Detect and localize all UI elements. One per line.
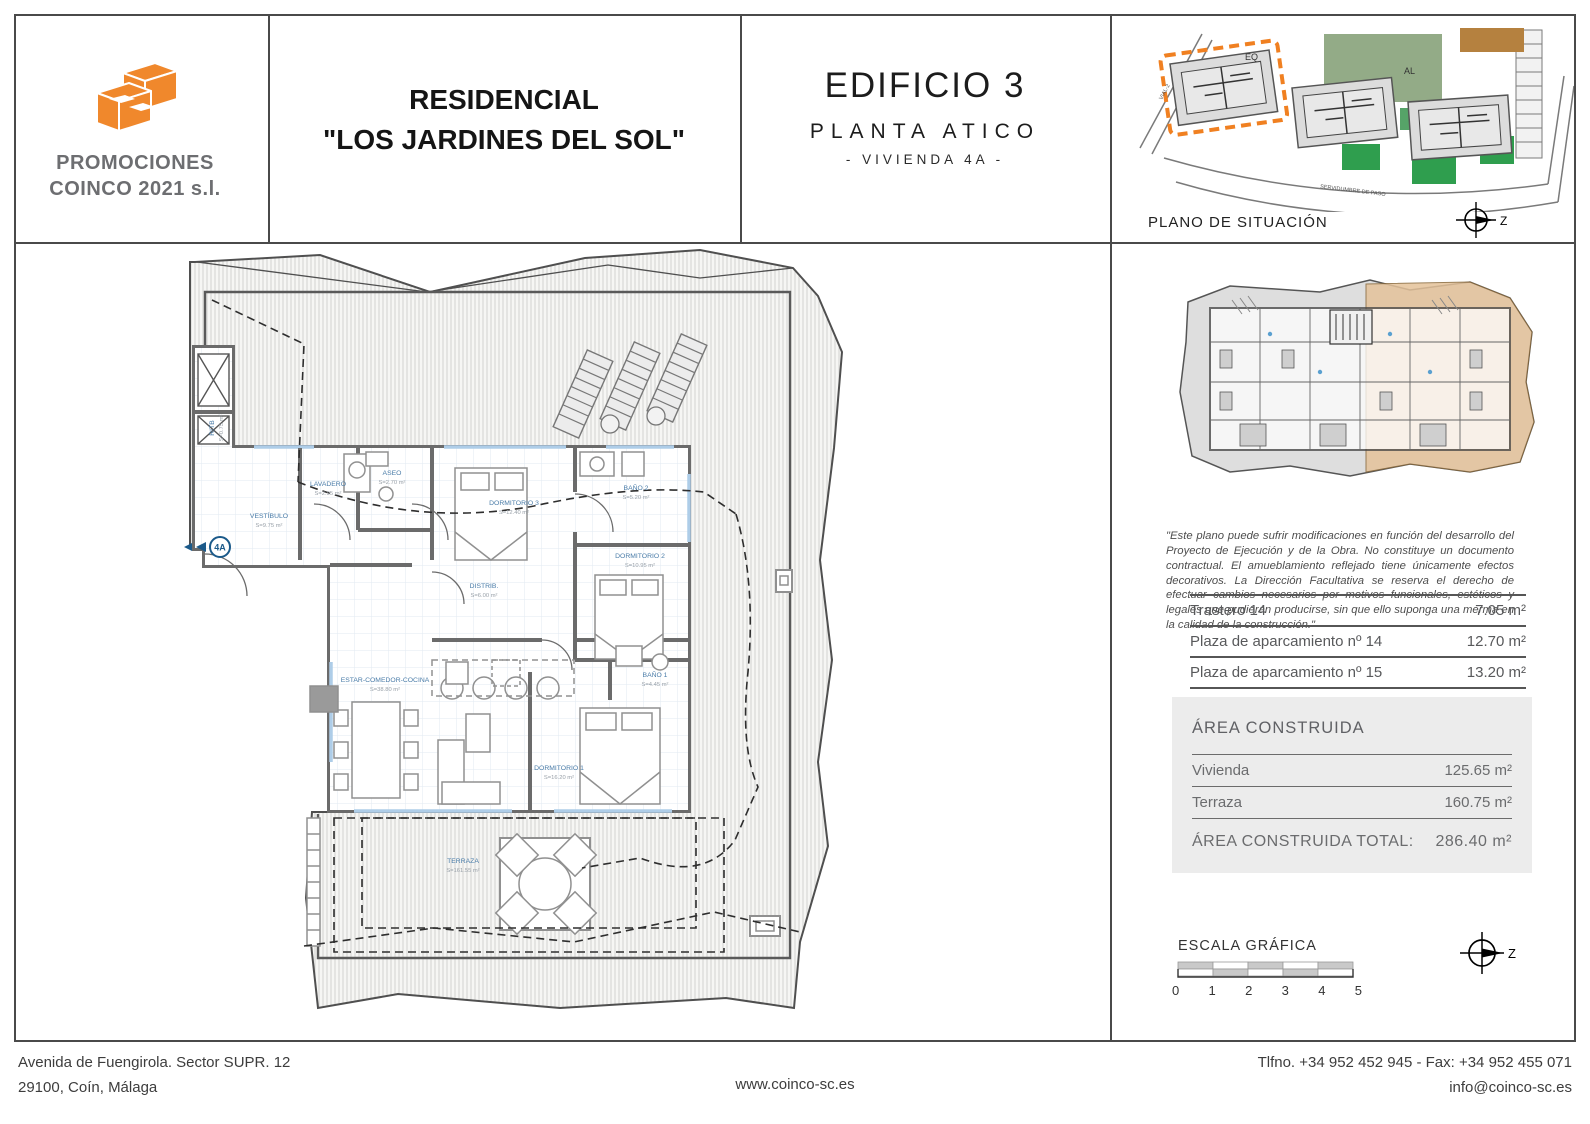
room-label: BAÑO 1 <box>643 670 668 679</box>
annex-table: Trastero 14 7.05 m² Plaza de aparcamient… <box>1190 594 1526 689</box>
situation-label-al: AL <box>1404 66 1415 76</box>
room-label: ASEO <box>383 470 402 477</box>
room-label: RITB <box>209 420 216 436</box>
room-label: DORMITORIO 2 <box>615 553 665 560</box>
room-area: S=2.95 m² <box>315 491 342 497</box>
north-compass-icon: Z <box>1442 930 1532 976</box>
scale-tick: 2 <box>1245 983 1252 998</box>
scale-section: ESCALA GRÁFICA <box>1178 938 1317 954</box>
table-row: Vivienda 125.65 m² <box>1192 755 1512 787</box>
area-total-label: ÁREA CONSTRUIDA TOTAL: <box>1192 833 1414 851</box>
unit-name: - VIVIENDA 4A - <box>742 152 1108 167</box>
area-box-title: ÁREA CONSTRUIDA <box>1192 719 1512 738</box>
frame-right <box>1574 14 1576 1042</box>
room-area: S=161.55 m² <box>446 868 479 874</box>
north-compass-icon: Z <box>1440 200 1520 240</box>
room-label: VESTÍBULO <box>250 511 288 520</box>
room-area: S=9.75 m² <box>256 523 283 529</box>
annex-value: 13.20 m² <box>1467 664 1526 681</box>
title-line2: "LOS JARDINES DEL SOL" <box>270 120 738 160</box>
entrance-label: 4A <box>214 543 226 553</box>
table-row: Terraza 160.75 m² <box>1192 787 1512 819</box>
table-row: Plaza de aparcamiento nº 15 13.20 m² <box>1190 656 1526 689</box>
room-area: S=5.20 m² <box>623 495 650 501</box>
footer-phone: Tlfno. +34 952 452 945 - Fax: +34 952 45… <box>1258 1050 1572 1075</box>
area-label: Terraza <box>1192 794 1242 811</box>
situation-building-3 <box>1408 95 1512 160</box>
floor-plan-drawing: 4A VESTÍBULO S=9.75 m² LAVADERO S=2.95 m… <box>14 242 1108 1040</box>
compass-z-label: Z <box>1508 946 1516 961</box>
situation-label-eq: EQ <box>1245 52 1258 62</box>
company-name-line2: COINCO 2021 s.l. <box>30 176 240 202</box>
annex-label: Plaza de aparcamiento nº 15 <box>1190 664 1382 681</box>
company-name: PROMOCIONES COINCO 2021 s.l. <box>30 150 240 202</box>
room-label: BAÑO 2 <box>624 483 649 492</box>
plan-sheet: PROMOCIONES COINCO 2021 s.l. RESIDENCIAL… <box>0 0 1590 1124</box>
annex-label: Plaza de aparcamiento nº 14 <box>1190 633 1382 650</box>
annex-label: Trastero 14 <box>1190 602 1266 619</box>
plan-identifier: EDIFICIO 3 PLANTA ATICO - VIVIENDA 4A - <box>742 66 1108 167</box>
situation-building-1 <box>1160 40 1288 136</box>
key-plan <box>1170 272 1550 494</box>
key-plan-stair <box>1330 310 1372 344</box>
compass-z-label: Z <box>1500 214 1507 228</box>
area-summary-box: ÁREA CONSTRUIDA Vivienda 125.65 m² Terra… <box>1172 697 1532 873</box>
scale-bar <box>1176 960 1356 980</box>
building-name: EDIFICIO 3 <box>742 66 1108 106</box>
room-label: TERRAZA <box>447 858 479 865</box>
room-area: S=12.40 m² <box>499 510 529 516</box>
room-area: S=2.70 m² <box>379 480 406 486</box>
annex-value: 12.70 m² <box>1467 633 1526 650</box>
scale-tick: 1 <box>1209 983 1216 998</box>
room-area: S=16.20 m² <box>544 775 574 781</box>
scale-tick: 4 <box>1318 983 1325 998</box>
area-total-row: ÁREA CONSTRUIDA TOTAL: 286.40 m² <box>1192 819 1512 865</box>
table-row: Plaza de aparcamiento nº 14 12.70 m² <box>1190 625 1526 656</box>
scale-tick: 0 <box>1172 983 1179 998</box>
area-total-value: 286.40 m² <box>1435 833 1512 851</box>
annex-value: 7.05 m² <box>1475 602 1526 619</box>
scale-title: ESCALA GRÁFICA <box>1178 938 1317 954</box>
title-line1: RESIDENCIAL <box>270 80 738 120</box>
frame-bottom <box>14 1040 1576 1042</box>
situation-building-2 <box>1292 78 1398 148</box>
table-row: Trastero 14 7.05 m² <box>1190 594 1526 625</box>
room-area: S=4.45 m² <box>642 682 669 688</box>
scale-tick: 5 <box>1355 983 1362 998</box>
scale-tick: 3 <box>1282 983 1289 998</box>
room-area: S=38.80 m² <box>370 687 400 693</box>
room-label: DORMITORIO 3 <box>489 500 539 507</box>
area-label: Vivienda <box>1192 762 1249 779</box>
scale-tick-labels: 0 1 2 3 4 5 <box>1172 983 1362 998</box>
floor-name: PLANTA ATICO <box>742 120 1108 144</box>
room-label: ESTAR-COMEDOR-COCINA <box>341 677 430 684</box>
room-label: LAVADERO <box>310 481 346 488</box>
company-name-line1: PROMOCIONES <box>30 150 240 176</box>
area-value: 125.65 m² <box>1444 762 1512 779</box>
room-label: DORMITORIO 1 <box>534 765 584 772</box>
situation-caption: PLANO DE SITUACIÓN <box>1148 214 1328 231</box>
company-logo-icon <box>85 55 195 150</box>
room-label: DISTRIB. <box>470 583 499 590</box>
footer-email: info@coinco-sc.es <box>1258 1075 1572 1100</box>
page-title: RESIDENCIAL "LOS JARDINES DEL SOL" <box>270 80 738 160</box>
room-area: S=6.00 m² <box>471 593 498 599</box>
situation-plan: EQ AL VIAL-2 SERVIDUMBRE DE PASO <box>1112 16 1574 212</box>
situation-label-street: SERVIDUMBRE DE PASO <box>1320 184 1387 198</box>
room-area: S=0.75 m² <box>219 414 225 441</box>
area-value: 160.75 m² <box>1444 794 1512 811</box>
footer-contact: Tlfno. +34 952 452 945 - Fax: +34 952 45… <box>1258 1050 1572 1100</box>
room-area: S=10.95 m² <box>625 563 655 569</box>
